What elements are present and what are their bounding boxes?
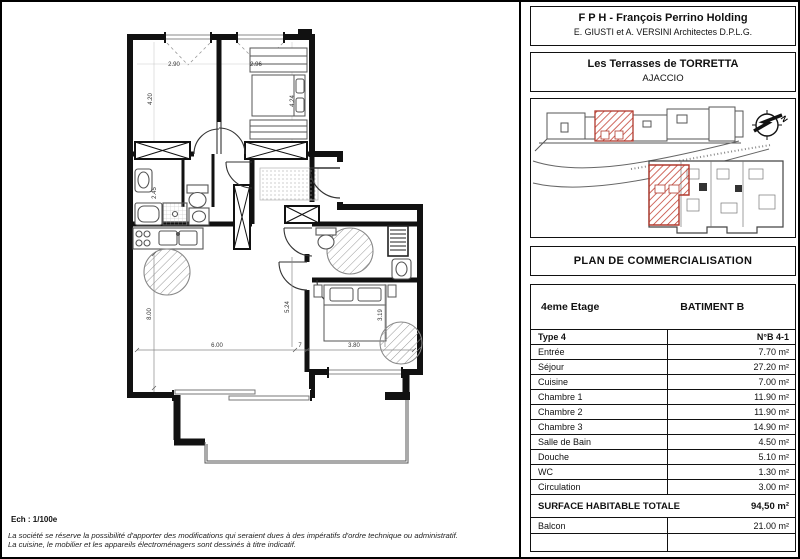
balcony-value: 21.00 m² xyxy=(668,521,795,531)
dimension-label: 2.90 xyxy=(168,62,180,68)
room-area: 14.90 m² xyxy=(668,422,795,432)
empty-row xyxy=(531,533,795,551)
architects-line: E. GIUSTI et A. VERSINI Architectes D.P.… xyxy=(531,27,795,37)
entrance xyxy=(260,162,344,202)
bed-ch2 xyxy=(252,75,305,116)
floor-label: 4eme Etage xyxy=(531,301,668,313)
table-row: Circulation3.00 m² xyxy=(531,479,795,494)
dimension-label: 6.00 xyxy=(211,343,223,349)
table-row: WC1.30 m² xyxy=(531,464,795,479)
room-area: 1.30 m² xyxy=(668,467,795,477)
room-label: Séjour xyxy=(531,360,668,374)
fixtures xyxy=(133,169,209,295)
radiator xyxy=(388,226,408,256)
key-plan xyxy=(649,161,783,233)
room-label: Douche xyxy=(531,450,668,464)
room-label: WC xyxy=(531,465,668,479)
floor-header-row: 4eme Etage BATIMENT B xyxy=(531,285,795,329)
table-row: Chambre 111.90 m² xyxy=(531,389,795,404)
document-page: 2.90 2.96 4.20 4.24 2.45 6.00 7 3.80 8.0… xyxy=(0,0,800,559)
type-label: Type 4 xyxy=(531,330,668,344)
window-ch1 xyxy=(165,31,211,43)
room-label: Chambre 2 xyxy=(531,405,668,419)
room-area: 11.90 m² xyxy=(668,407,795,417)
room-area: 3.00 m² xyxy=(668,482,795,492)
project-city: AJACCIO xyxy=(531,73,795,84)
room-area: 27.20 m² xyxy=(668,362,795,372)
site-buildings-row xyxy=(535,107,743,151)
room-label: Salle de Bain xyxy=(531,435,668,449)
plan-title: PLAN DE COMMERCIALISATION xyxy=(574,255,752,267)
title-block-panel: F P H - François Perrino Holding E. GIUS… xyxy=(519,2,800,557)
areas-table: 4eme Etage BATIMENT B Type 4 N°B 4-1 Ent… xyxy=(530,284,796,552)
table-row: Douche5.10 m² xyxy=(531,449,795,464)
dimension-label: 3.80 xyxy=(348,343,360,349)
project-name: Les Terrasses de TORRETTA xyxy=(531,58,795,70)
total-row: SURFACE HABITABLE TOTALE 94,50 m² xyxy=(531,494,795,517)
closet-ch1 xyxy=(135,142,190,159)
dimension-label: 7 xyxy=(298,343,302,349)
room-rows: Entrée7.70 m²Séjour27.20 m²Cuisine7.00 m… xyxy=(531,344,795,494)
room-label: Circulation xyxy=(531,480,668,494)
washbasin xyxy=(135,169,152,192)
kitchen-counter xyxy=(133,228,203,249)
balcony-row: Balcon 21.00 m² xyxy=(531,517,795,533)
disclaimer-line2: La cuisine, le mobilier et les appareils… xyxy=(8,540,517,549)
table-row: Séjour27.20 m² xyxy=(531,359,795,374)
company-header-box: F P H - François Perrino Holding E. GIUS… xyxy=(530,6,796,46)
pillar xyxy=(298,29,312,40)
wc-toilet xyxy=(187,185,208,208)
scale-label: Ech : 1/100e xyxy=(11,515,57,524)
total-value: 94,50 m² xyxy=(751,501,795,512)
dimension-label: 2.45 xyxy=(152,187,158,199)
floor-plan-panel: 2.90 2.96 4.20 4.24 2.45 6.00 7 3.80 8.0… xyxy=(2,2,519,557)
balcony-label: Balcon xyxy=(531,518,668,533)
room-label: Chambre 3 xyxy=(531,420,668,434)
window-ch3 xyxy=(328,366,402,378)
small-tub xyxy=(392,259,411,279)
company-name: F P H - François Perrino Holding xyxy=(531,12,795,24)
dimension-label: 8.00 xyxy=(147,308,153,320)
table-row: Chambre 314.90 m² xyxy=(531,419,795,434)
room-label: Cuisine xyxy=(531,375,668,389)
unit-number: N°B 4-1 xyxy=(668,332,795,342)
wc-toilet-2 xyxy=(316,228,336,249)
building-label: BATIMENT B xyxy=(668,301,795,313)
room-label: Entrée xyxy=(531,345,668,359)
chambre3-furniture xyxy=(314,285,422,364)
room-area: 7.00 m² xyxy=(668,377,795,387)
entry-mat xyxy=(260,168,318,200)
corner-table xyxy=(380,322,422,364)
room-area: 7.70 m² xyxy=(668,347,795,357)
table-row: Entrée7.70 m² xyxy=(531,344,795,359)
dimension-label: 3.19 xyxy=(378,309,384,321)
sliding-door-sejour xyxy=(173,389,311,401)
type-row: Type 4 N°B 4-1 xyxy=(531,329,795,344)
site-plan-drawing: N xyxy=(531,99,794,236)
table-row: Chambre 211.90 m² xyxy=(531,404,795,419)
bathtub xyxy=(135,203,162,225)
table-row: Salle de Bain4.50 m² xyxy=(531,434,795,449)
room-area: 5.10 m² xyxy=(668,452,795,462)
disclaimer-line1: La société se réserve la possibilité d'a… xyxy=(8,531,517,540)
room-area: 11.90 m² xyxy=(668,392,795,402)
plan-title-box: PLAN DE COMMERCIALISATION xyxy=(530,246,796,276)
floor-plan-drawing: 2.90 2.96 4.20 4.24 2.45 6.00 7 3.80 8.0… xyxy=(2,2,519,514)
closet-tall xyxy=(234,185,250,249)
room-label: Chambre 1 xyxy=(531,390,668,404)
dining-table xyxy=(144,249,190,295)
shower xyxy=(163,203,187,225)
site-plan-box: N xyxy=(530,98,796,238)
disclaimer: La société se réserve la possibilité d'a… xyxy=(8,531,517,549)
douche-fixtures xyxy=(316,226,411,279)
table-row: Cuisine7.00 m² xyxy=(531,374,795,389)
window-ch2 xyxy=(237,31,284,43)
dimension-label: 2.96 xyxy=(250,62,262,68)
balcony xyxy=(174,374,410,463)
basin-2 xyxy=(189,208,209,225)
dimension-label: 5.24 xyxy=(285,301,291,313)
project-box: Les Terrasses de TORRETTA AJACCIO xyxy=(530,52,796,92)
closet-ch2 xyxy=(245,142,307,159)
north-arrow: N xyxy=(752,110,790,140)
dimension-label: 4.24 xyxy=(290,95,296,107)
closet-hall xyxy=(285,206,319,223)
dimension-label: 4.20 xyxy=(148,93,154,105)
room-area: 4.50 m² xyxy=(668,437,795,447)
total-label: SURFACE HABITABLE TOTALE xyxy=(531,501,751,512)
bed-ch3 xyxy=(324,285,386,341)
